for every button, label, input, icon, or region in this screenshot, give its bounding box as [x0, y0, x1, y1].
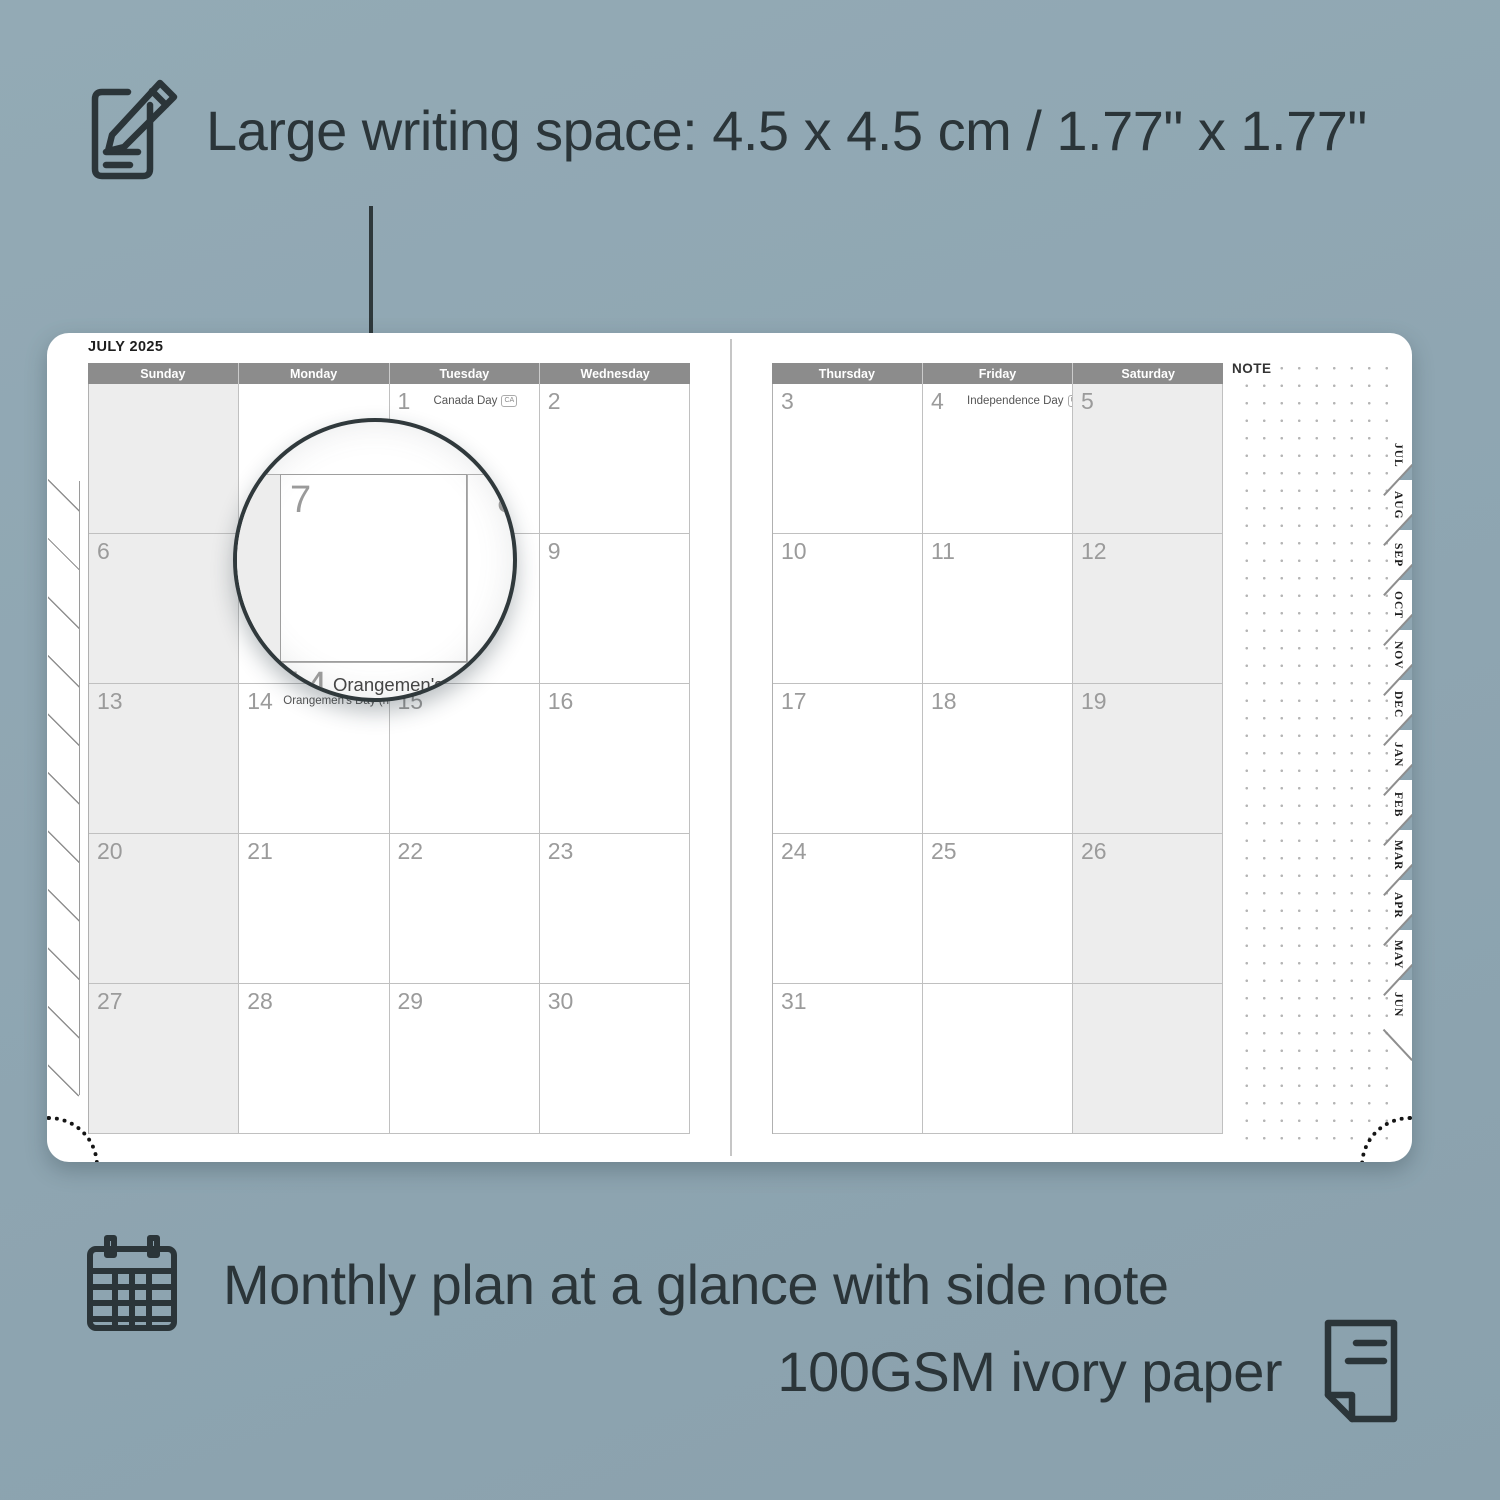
calendar-cell: 25	[923, 834, 1073, 984]
date-number: 16	[548, 688, 574, 715]
calendar-cell: 16	[540, 684, 690, 834]
bottom-caption-paper-label: 100GSM ivory paper	[777, 1339, 1282, 1404]
note-dot-grid: NOTE	[1232, 363, 1390, 1144]
product-image: { "colors":{ "background":"#8fa6b2", "in…	[0, 0, 1500, 1500]
calendar-grid-icon	[85, 1235, 179, 1333]
page-spine-divider	[730, 339, 732, 1156]
calendar-week-row: 20212223	[88, 834, 690, 984]
calendar-cell: 29	[390, 984, 540, 1134]
magnified-holiday-name: Orangemen's Day (n.i.)	[333, 674, 517, 696]
month-tab-label: JUL	[1392, 443, 1404, 468]
calendar-week-row: 101112	[772, 534, 1223, 684]
calendar-cell: 12	[1073, 534, 1223, 684]
date-number: 19	[1081, 688, 1107, 715]
month-tab-label: MAR	[1392, 840, 1404, 870]
day-header: Tuesday	[389, 363, 540, 384]
calendar-week-row: 27282930	[88, 984, 690, 1134]
month-tab-jun: JUN	[1384, 980, 1412, 1030]
date-number: 24	[781, 838, 807, 865]
magnifier-shaded-column	[237, 474, 280, 662]
top-caption-label: Large writing space: 4.5 x 4.5 cm / 1.77…	[206, 98, 1367, 163]
date-number: 21	[247, 838, 273, 865]
calendar-cell: 3	[773, 384, 923, 534]
calendar-cell: 18	[923, 684, 1073, 834]
magnifier-grid-line	[467, 474, 468, 662]
calendar-cell: 9	[540, 534, 690, 684]
date-number: 13	[97, 688, 123, 715]
date-number: 9	[548, 538, 561, 565]
calendar-week-row: 34Independence DayUS5	[772, 384, 1223, 534]
calendar-cell: 26	[1073, 834, 1223, 984]
calendar-week-row: 242526	[772, 834, 1223, 984]
calendar-cell: 2	[540, 384, 690, 534]
month-tab-label: JUN	[1392, 992, 1404, 1017]
calendar-week-row: 1314Orangemen's Day (n.i.)UK1516	[88, 684, 690, 834]
day-header: Friday	[922, 363, 1073, 384]
calendar-week-row: 171819	[772, 684, 1223, 834]
date-number: 27	[97, 988, 123, 1015]
calendar-cell: 6	[89, 534, 239, 684]
month-tab-label: JAN	[1392, 742, 1404, 767]
month-tab-label: DEC	[1392, 691, 1404, 718]
date-number: 28	[247, 988, 273, 1015]
month-tab-rail: JULAUGSEPOCTNOVDECJANFEBMARAPRMAYJUN	[1384, 430, 1412, 1064]
calendar-cell: 27	[89, 984, 239, 1134]
tab-closing-line	[1383, 1029, 1412, 1061]
date-number: 31	[781, 988, 807, 1015]
calendar-cell: 15	[390, 684, 540, 834]
magnifier-circle: 7 8 14 Orangemen's Day (n.i.) UK	[233, 418, 517, 702]
calendar-cell	[89, 384, 239, 534]
month-tab-label: SEP	[1392, 543, 1404, 567]
day-header: Sunday	[88, 363, 238, 384]
date-number: 22	[398, 838, 424, 865]
bottom-caption-monthly-label: Monthly plan at a glance with side note	[223, 1252, 1169, 1317]
notepad-pencil-icon	[88, 77, 180, 183]
day-header-row: SundayMondayTuesdayWednesday	[88, 363, 690, 384]
date-number: 2	[548, 388, 561, 415]
date-number: 25	[931, 838, 957, 865]
bottom-caption-paper: 100GSM ivory paper	[777, 1316, 1404, 1426]
date-number: 3	[781, 388, 794, 415]
planner-spread: JULY 2025 SundayMondayTuesdayWednesday1C…	[47, 333, 1412, 1162]
day-header-row: ThursdayFridaySaturday	[772, 363, 1223, 384]
magnified-holiday: Orangemen's Day (n.i.) UK	[333, 674, 517, 696]
date-number: 1	[398, 388, 411, 415]
note-label: NOTE	[1232, 361, 1278, 379]
calendar-cell: 24	[773, 834, 923, 984]
calendar-cell: 11	[923, 534, 1073, 684]
date-number: 23	[548, 838, 574, 865]
month-tab-label: MAY	[1392, 940, 1404, 969]
calendar-cell: 31	[773, 984, 923, 1134]
date-number: 18	[931, 688, 957, 715]
date-number: 20	[97, 838, 123, 865]
calendar-cell: 20	[89, 834, 239, 984]
calendar-cell: 22	[390, 834, 540, 984]
calendar-cell: 23	[540, 834, 690, 984]
magnifier-grid-line	[237, 662, 513, 663]
top-caption: Large writing space: 4.5 x 4.5 cm / 1.77…	[88, 74, 1367, 186]
calendar-cell	[923, 984, 1073, 1134]
date-number: 29	[398, 988, 424, 1015]
calendar-cell: 30	[540, 984, 690, 1134]
holiday-name: Canada Day	[434, 395, 498, 407]
month-tab-label: FEB	[1392, 792, 1404, 817]
calendar-cell: 14Orangemen's Day (n.i.)UK	[239, 684, 389, 834]
magnified-date-7: 7	[290, 479, 311, 522]
holiday-label: Canada DayCA	[434, 395, 518, 407]
binding-hatch-edge	[48, 453, 80, 1123]
date-number: 4	[931, 388, 944, 415]
magnified-date-14: 14	[283, 664, 328, 702]
date-number: 6	[97, 538, 110, 565]
month-title: JULY 2025	[88, 339, 163, 355]
month-tab-label: OCT	[1392, 591, 1404, 619]
day-header: Saturday	[1072, 363, 1223, 384]
month-tab-label: NOV	[1392, 641, 1404, 670]
calendar-week-row: 31	[772, 984, 1223, 1134]
date-number: 11	[931, 538, 955, 565]
calendar-cell: 17	[773, 684, 923, 834]
calendar-cell: 5	[1073, 384, 1223, 534]
paper-sheet-icon	[1318, 1319, 1404, 1423]
date-number: 17	[781, 688, 807, 715]
calendar-cell: 13	[89, 684, 239, 834]
date-number: 14	[247, 688, 273, 715]
date-number: 10	[781, 538, 807, 565]
date-number: 12	[1081, 538, 1107, 565]
calendar-cell: 28	[239, 984, 389, 1134]
calendar-cell: 19	[1073, 684, 1223, 834]
month-tab-label: AUG	[1392, 491, 1404, 520]
right-month-grid: ThursdayFridaySaturday34Independence Day…	[772, 363, 1223, 1134]
day-header: Monday	[238, 363, 389, 384]
holiday-label: Independence DayUS	[967, 395, 1073, 407]
binding-hatch-border	[79, 481, 80, 1095]
date-number: 26	[1081, 838, 1107, 865]
country-badge: CA	[501, 395, 517, 407]
calendar-cell	[1073, 984, 1223, 1134]
day-header: Thursday	[772, 363, 922, 384]
calendar-cell: 21	[239, 834, 389, 984]
month-tab-label: APR	[1392, 892, 1404, 919]
holiday-name: Independence Day	[967, 395, 1064, 407]
calendar-cell: 4Independence DayUS	[923, 384, 1073, 534]
date-number: 30	[548, 988, 574, 1015]
calendar-cell: 10	[773, 534, 923, 684]
date-number: 5	[1081, 388, 1094, 415]
day-header: Wednesday	[539, 363, 690, 384]
